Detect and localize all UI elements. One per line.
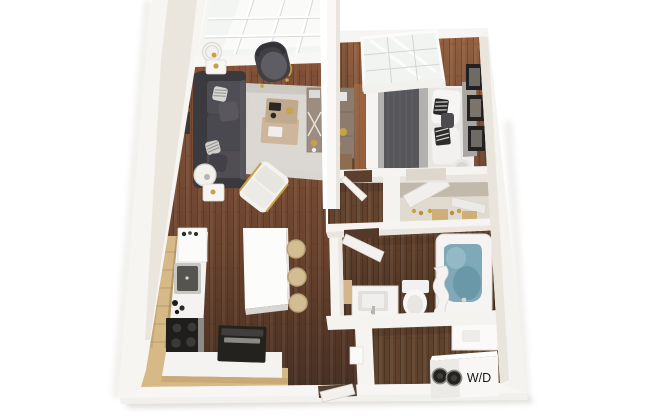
svg-text:W/D: W/D — [467, 371, 491, 385]
